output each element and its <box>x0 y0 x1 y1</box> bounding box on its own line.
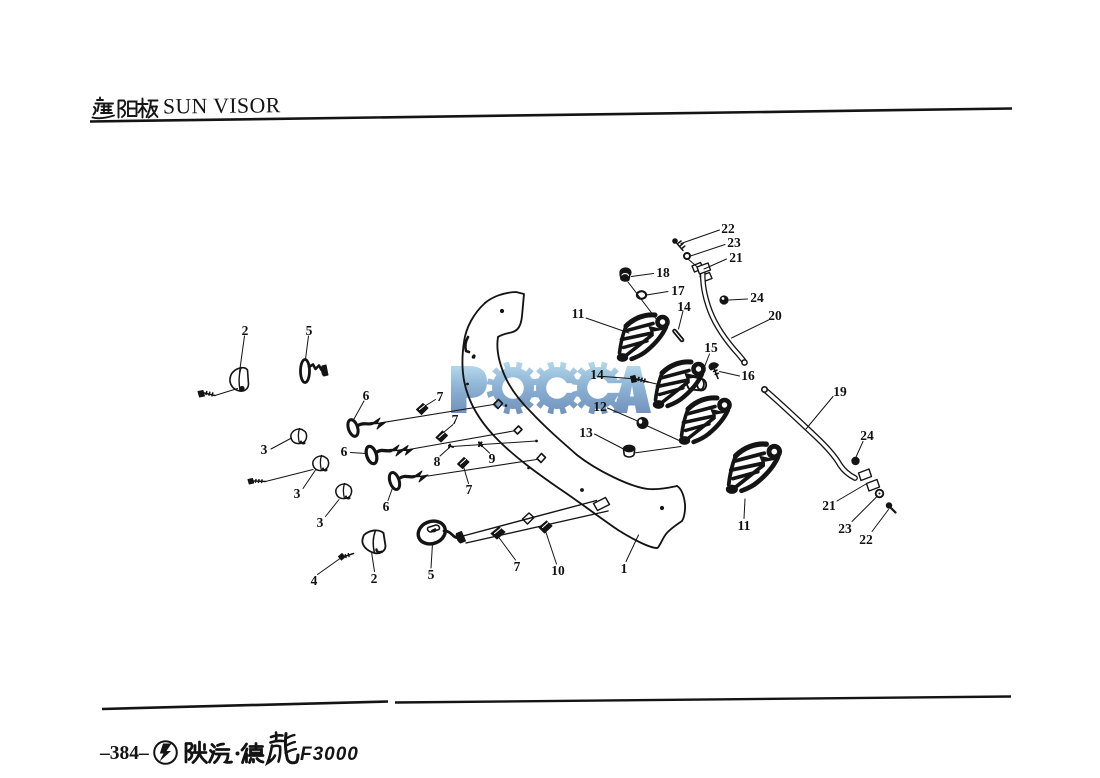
svg-text:6: 6 <box>383 499 390 514</box>
svg-text:13: 13 <box>579 425 593 440</box>
svg-text:12: 12 <box>593 399 607 414</box>
svg-text:21: 21 <box>729 250 743 265</box>
svg-text:10: 10 <box>551 563 565 578</box>
svg-text:7: 7 <box>437 389 444 404</box>
svg-text:1: 1 <box>621 561 628 576</box>
svg-text:22: 22 <box>721 221 735 236</box>
svg-text:14: 14 <box>677 299 691 314</box>
svg-text:7: 7 <box>514 559 521 574</box>
svg-text:3: 3 <box>261 442 268 457</box>
svg-text:19: 19 <box>833 384 847 399</box>
svg-text:3: 3 <box>317 515 324 530</box>
svg-text:F3000: F3000 <box>300 744 359 765</box>
svg-text:3: 3 <box>294 486 301 501</box>
svg-text:6: 6 <box>363 388 370 403</box>
svg-text:17: 17 <box>671 283 685 298</box>
svg-text:8: 8 <box>434 454 441 469</box>
svg-text:2: 2 <box>371 571 378 586</box>
svg-text:9: 9 <box>489 451 496 466</box>
svg-text:6: 6 <box>341 444 348 459</box>
svg-text:11: 11 <box>572 306 585 321</box>
svg-text:24: 24 <box>750 290 764 305</box>
svg-text:14: 14 <box>590 367 604 382</box>
svg-text:–384–: –384– <box>99 743 149 764</box>
svg-text:23: 23 <box>838 521 852 536</box>
svg-text:20: 20 <box>768 308 782 323</box>
svg-text:18: 18 <box>656 265 670 280</box>
svg-text:2: 2 <box>242 323 249 338</box>
svg-text:4: 4 <box>311 573 318 588</box>
svg-text:23: 23 <box>727 235 741 250</box>
svg-text:21: 21 <box>822 498 836 513</box>
svg-text:15: 15 <box>704 340 718 355</box>
svg-text:16: 16 <box>741 368 755 383</box>
svg-text:11: 11 <box>738 518 751 533</box>
svg-text:7: 7 <box>452 412 459 427</box>
svg-text:24: 24 <box>860 428 874 443</box>
svg-text:5: 5 <box>306 323 313 338</box>
svg-text:7: 7 <box>466 482 473 497</box>
svg-text:22: 22 <box>859 532 873 547</box>
svg-text:5: 5 <box>428 567 435 582</box>
svg-text:SUN VISOR: SUN VISOR <box>163 93 281 118</box>
